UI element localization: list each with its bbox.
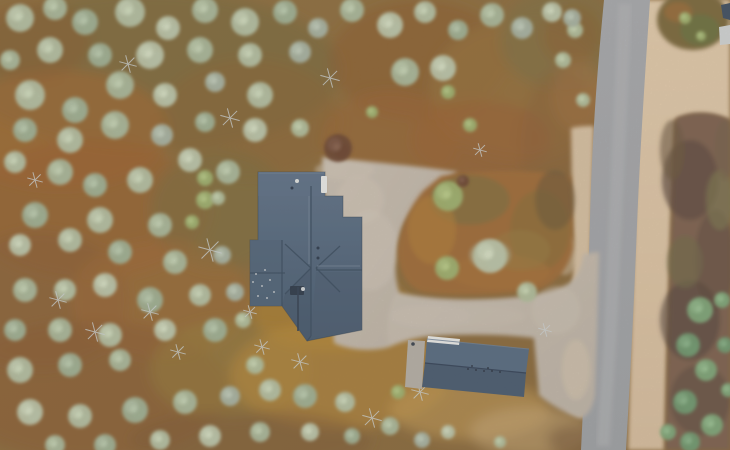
noise-overlay xyxy=(0,0,730,450)
aerial-photo-canvas xyxy=(0,0,730,450)
aerial-drone-photo xyxy=(0,0,730,450)
